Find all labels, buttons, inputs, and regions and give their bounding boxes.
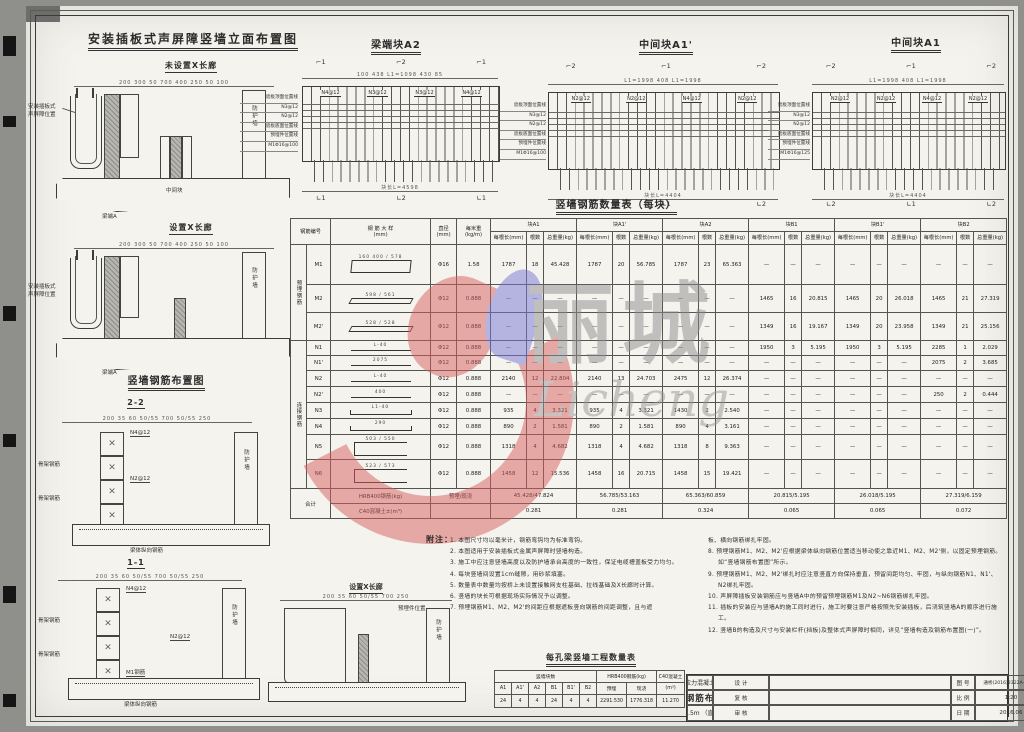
table-cell: 1776.318 — [627, 695, 657, 708]
table-cell: (m³) — [657, 683, 685, 695]
wall-block-a — [104, 256, 120, 340]
table-cell: 1950 — [835, 341, 871, 356]
table-cell: 2 — [957, 356, 974, 371]
table-cell: N1 — [307, 341, 331, 356]
deck-slab — [68, 678, 260, 700]
table-cell: 20 — [613, 245, 630, 285]
table-cell: 23.958 — [888, 313, 921, 341]
guard-wall: 防护墙 — [222, 588, 246, 680]
table-cell: — — [544, 341, 577, 356]
list-item: ∟1 — [316, 194, 326, 202]
scan-mark — [3, 434, 16, 447]
list-item: ⌐2 — [826, 62, 836, 70]
table-cell: N2' — [307, 387, 331, 403]
table-cell: 现浇 — [627, 683, 657, 695]
table-cell: 890 — [663, 419, 699, 435]
scan-mark — [3, 36, 16, 56]
n2-tag: N2@12 — [130, 476, 150, 483]
table-cell: — — [699, 341, 716, 356]
table-cell: 1.581 — [544, 419, 577, 435]
table-cell: — — [613, 356, 630, 371]
table-cell: — — [888, 460, 921, 489]
table-cell: 4 — [613, 435, 630, 460]
table-cell: — — [663, 285, 699, 313]
notes-right-column: 板、横向钢筋绑扎牢固。8. 预埋钢筋M1、M2、M2'应根据梁体纵向钢筋位置适当… — [708, 536, 1004, 637]
table-cell: 0.888 — [457, 341, 491, 356]
table-cell: 528 / 528 — [331, 313, 431, 341]
qty-table-title: 每孔梁竖墙工程数量表 — [496, 652, 686, 667]
table-cell: 3.161 — [716, 419, 749, 435]
dimension-line: 200 35 60 50/55 700 50/55 250 — [62, 416, 252, 423]
table-cell: 4 — [563, 695, 580, 708]
bottom-dimension: 块长L=4598 — [302, 184, 498, 192]
table-cell: 890 — [577, 419, 613, 435]
table-cell: — — [888, 387, 921, 403]
embed-position-label: 预埋件位置 — [398, 604, 426, 612]
table-cell: 1349 — [749, 313, 785, 341]
list-item: N4@12 — [320, 90, 340, 97]
anchor-bolt — [92, 88, 94, 98]
section-label: 2-2 — [127, 398, 144, 409]
table-cell: 预埋 — [597, 683, 627, 695]
table-cell: 5.195 — [888, 341, 921, 356]
guard-wall-label: 防护墙 — [434, 619, 442, 642]
table-cell: 290 — [331, 419, 431, 435]
deck-rebar-label: 梁体纵向钢筋 — [130, 546, 163, 554]
table-cell: — — [785, 371, 802, 387]
table-cell: HRB400钢筋(kg) — [331, 489, 431, 504]
table-cell: — — [888, 245, 921, 285]
table-cell: 20 — [871, 285, 888, 313]
beam-end-label: 梁端A — [102, 212, 117, 220]
table-cell: 3 — [785, 341, 802, 356]
table-cell: 1318 — [491, 435, 527, 460]
subtitle-text: 设置X长廊 — [169, 222, 212, 235]
table-cell: 钢 筋 大 样 (mm) — [331, 219, 431, 245]
table-cell: 0.281 — [491, 504, 577, 519]
table-cell: Φ12 — [431, 371, 457, 387]
table-cell: 2 — [699, 403, 716, 419]
rebar-tails — [306, 160, 494, 182]
table-cell: — — [835, 245, 871, 285]
table-cell: — — [527, 285, 544, 313]
checker-value — [769, 690, 951, 705]
table-cell — [431, 504, 491, 519]
table-cell: — — [716, 341, 749, 356]
table-cell: — — [974, 245, 1007, 285]
designer-label: 设 计 — [713, 675, 769, 690]
table-cell: 26.018/5.195 — [835, 489, 921, 504]
list-item: N2@12 — [830, 96, 850, 103]
list-item: ∟2 — [756, 200, 766, 208]
table-cell: Φ12 — [431, 435, 457, 460]
subtitle-text: 未设置X长廊 — [165, 60, 217, 73]
table-cell: — — [802, 403, 835, 419]
table-cell: 26.018 — [888, 285, 921, 313]
per-span-qty-table: 竖墙块数HRB400钢筋(kg)C40混凝土A1A1'A2B1B1'B2预埋现浇… — [494, 670, 685, 708]
table-cell: 每根长(mm) — [835, 232, 871, 245]
mid-hatch-block — [358, 634, 369, 684]
list-item: N3@12 — [414, 90, 434, 97]
table-cell: 22.804 — [544, 371, 577, 387]
table-cell: Φ12 — [431, 341, 457, 356]
table-cell: 4 — [527, 435, 544, 460]
rebar-grid-a1p: N2@12N2@12N4@12N2@12 — [548, 92, 780, 170]
table-cell: — — [957, 245, 974, 285]
table-cell: L-40 — [331, 341, 431, 356]
list-item: ⌐2 — [566, 62, 576, 70]
block-a1p-title: 中间块A1' — [586, 36, 746, 55]
table-cell: 15 — [699, 460, 716, 489]
list-item: N3@12 — [768, 112, 810, 122]
table-cell: 根数 — [527, 232, 544, 245]
table-cell: C40混凝土 — [657, 671, 685, 683]
table-cell: — — [613, 313, 630, 341]
table-cell: — — [835, 419, 871, 435]
table-cell: — — [785, 435, 802, 460]
table-cell: N5 — [307, 435, 331, 460]
table-cell: N6 — [307, 460, 331, 489]
table-cell: 0.444 — [974, 387, 1007, 403]
deck-slab — [268, 682, 466, 702]
table-cell: — — [527, 387, 544, 403]
project-line1: 无砟轨道后张法预应力混凝土简支箱梁（双线） — [687, 675, 713, 690]
table-cell: 5.195 — [802, 341, 835, 356]
table-cell: — — [716, 356, 749, 371]
dimension-line: 100 438 L1=1098 430 85 — [302, 72, 498, 79]
n4-tag: N4@12 — [130, 430, 150, 437]
list-item: N2@12 — [626, 96, 646, 103]
list-item: ∟2 — [396, 194, 406, 202]
table-cell: — — [613, 285, 630, 313]
section-marks: ∟2∟1∟2 — [826, 200, 996, 208]
scale-label: 比 例 — [951, 690, 975, 705]
mid-block-label: 中间块 — [166, 186, 183, 194]
table-cell: N4 — [307, 419, 331, 435]
table-cell: — — [974, 371, 1007, 387]
block-title-text: 中间块A1' — [639, 36, 693, 55]
anchor-u-post — [70, 258, 102, 329]
table-cell: — — [957, 419, 974, 435]
table-cell: 1349 — [921, 313, 957, 341]
table-cell: 9.363 — [716, 435, 749, 460]
subtitle-with-corridor: 设置X长廊 — [106, 222, 276, 235]
table-cell: 合计 — [291, 489, 331, 519]
dimension-line: L1=1998 408 L1=1998 — [812, 78, 1004, 85]
table-cell: 连接钢筋 — [291, 341, 307, 489]
table-cell: — — [802, 245, 835, 285]
wall-block-a — [104, 94, 120, 180]
table-cell: L1-40 — [331, 403, 431, 419]
table-cell: — — [749, 387, 785, 403]
table-cell: — — [577, 313, 613, 341]
list-item: 遮板顶面位置线 — [240, 94, 298, 104]
table-cell: 1950 — [749, 341, 785, 356]
list-item: ⌐2 — [396, 58, 406, 66]
table-cell: 0.888 — [457, 460, 491, 489]
table-cell: — — [802, 435, 835, 460]
table-cell: — — [527, 341, 544, 356]
table-cell: — — [871, 435, 888, 460]
table-cell: 总重量(kg) — [630, 232, 663, 245]
list-item: 7. 预埋钢筋M1、M2、M2'的间距应根据遮板竖向钢筋的间距调整，且与遮 — [450, 603, 702, 614]
table-cell: 25.156 — [974, 313, 1007, 341]
table-cell: 根数 — [613, 232, 630, 245]
table-cell: M2' — [307, 313, 331, 341]
table-cell: — — [630, 341, 663, 356]
table-cell: 2075 — [331, 356, 431, 371]
table-cell: 根数 — [871, 232, 888, 245]
table-cell: 4 — [699, 419, 716, 435]
list-item: N3@12 — [500, 112, 546, 122]
table-cell: C40混凝土±(m³) — [331, 504, 431, 519]
table-cell: — — [630, 387, 663, 403]
sheet-title: 竖墙构造及钢筋布置图（二） — [687, 690, 713, 705]
table-cell: — — [785, 460, 802, 489]
m1-rebar-label: M1钢筋 — [126, 668, 145, 677]
list-item: ∟1 — [906, 200, 916, 208]
table-cell: 1465 — [921, 285, 957, 313]
guard-wall-label: 防护墙 — [250, 267, 258, 290]
list-item: ⌐2 — [986, 62, 996, 70]
table-cell: Φ12 — [431, 313, 457, 341]
table-cell: 2 — [613, 419, 630, 435]
deck-slab — [56, 178, 290, 212]
table-cell: 20.715 — [630, 460, 663, 489]
table-cell: 根数 — [957, 232, 974, 245]
table-cell: Φ12 — [431, 460, 457, 489]
date-label: 日 期 — [951, 705, 975, 720]
list-item: ∟2 — [986, 200, 996, 208]
table-cell: M2 — [307, 285, 331, 313]
table-cell: 总重量(kg) — [544, 232, 577, 245]
table-cell: 65.363 — [716, 245, 749, 285]
callout-line2: 声屏障位置 — [28, 290, 56, 298]
list-item: ⌐1 — [316, 58, 326, 66]
table-cell: 400 — [331, 387, 431, 403]
mid-hatch-block — [170, 136, 182, 180]
table-cell: 1465 — [835, 285, 871, 313]
table-cell: 935 — [577, 403, 613, 419]
table-cell: 12 — [699, 371, 716, 387]
table-cell: 块A1' — [577, 219, 663, 232]
table-cell: 27.319 — [974, 285, 1007, 313]
table-cell: 4.682 — [630, 435, 663, 460]
stirrup-column: ✕✕ ✕✕ — [100, 432, 124, 524]
table-cell: — — [871, 371, 888, 387]
table-cell: — — [871, 387, 888, 403]
table-cell: — — [835, 403, 871, 419]
table-cell: — — [835, 356, 871, 371]
rebar-grid-a2: N4@12N3@12N3@12N4@12 — [302, 86, 500, 162]
list-item: N4@12 — [922, 96, 942, 103]
table-cell: — — [491, 313, 527, 341]
deck-slab — [56, 338, 290, 370]
corridor-section-diagram: 200 35 60 50/55 700 250 预埋件位置 防护墙 — [266, 594, 466, 708]
section-2-2-title: 2-2 — [96, 398, 176, 409]
corridor-wall — [284, 608, 346, 684]
table-cell: — — [699, 356, 716, 371]
stirrup-column: ✕✕ ✕✕ — [96, 588, 120, 678]
table-cell: 4 — [512, 695, 529, 708]
table-cell: — — [957, 371, 974, 387]
table-cell: — — [957, 435, 974, 460]
table-cell: — — [491, 341, 527, 356]
list-item: ∟2 — [826, 200, 836, 208]
table-cell: 24 — [546, 695, 563, 708]
paper: 安装插板式声屏障竖墙立面布置图 未设置X长廊 200 300 50 700 40… — [26, 6, 1018, 726]
table-cell: 总重量(kg) — [888, 232, 921, 245]
list-item: N2@12 — [500, 121, 546, 131]
deck-slab — [72, 524, 270, 546]
list-item: 8. 预埋钢筋M1、M2、M2'应根据梁体纵向钢筋位置适当移动使之靠近M1、M2… — [708, 547, 1004, 569]
designer-value — [769, 675, 951, 690]
table-cell: — — [663, 387, 699, 403]
table-cell: 4 — [527, 403, 544, 419]
table-cell: 8 — [699, 435, 716, 460]
table-cell: 0.888 — [457, 313, 491, 341]
date-value: 2016.06 — [975, 705, 1024, 720]
table-cell: 直径 (mm) — [431, 219, 457, 245]
table-cell: 每根长(mm) — [491, 232, 527, 245]
table-cell: 1465 — [749, 285, 785, 313]
table-cell: — — [716, 387, 749, 403]
table-cell: — — [544, 356, 577, 371]
table-cell: 0.888 — [457, 285, 491, 313]
table-cell: 根数 — [699, 232, 716, 245]
table-cell: — — [577, 341, 613, 356]
dimension-line: 200 300 50 700 400 250 50 100 — [74, 80, 274, 87]
table-cell: 根数 — [785, 232, 802, 245]
table-cell: — — [716, 313, 749, 341]
dimension-line: 200 300 50 700 400 250 50 100 — [74, 242, 274, 249]
table-cell: — — [491, 285, 527, 313]
table-cell: — — [749, 419, 785, 435]
main-title-text: 安装插板式声屏障竖墙立面布置图 — [88, 30, 298, 51]
callout-line1: 安装插板式 — [28, 102, 56, 110]
table-cell: 0.888 — [457, 403, 491, 419]
section-marks: ∟1∟2∟1 — [316, 194, 486, 202]
subtitle-no-corridor: 未设置X长廊 — [106, 60, 276, 73]
reviewer-value — [769, 705, 951, 720]
section-1-1-diagram: 200 35 60 50/55 700 50/55 250 骨架钢筋 骨架钢筋 … — [38, 572, 258, 708]
list-item: N4@12 — [461, 90, 481, 97]
list-item: 遮板底面位置线 — [500, 131, 546, 141]
list-item: ⌐1 — [476, 58, 486, 66]
block-title-text: 中间块A1 — [891, 34, 941, 53]
table-cell: — — [802, 419, 835, 435]
table-cell: 2140 — [577, 371, 613, 387]
section-label: 设置X长廊 — [349, 582, 382, 594]
table-cell: — — [577, 356, 613, 371]
table-cell: 2075 — [921, 356, 957, 371]
table-cell: 0.888 — [457, 387, 491, 403]
table-cell: 890 — [491, 419, 527, 435]
table-cell: 250 — [921, 387, 957, 403]
table-cell: 2 — [957, 387, 974, 403]
list-item: M1Φ16@100 — [240, 142, 298, 152]
table-cell: — — [921, 419, 957, 435]
mid-post — [182, 136, 192, 180]
list-item: 6. 竖墙的块长可根据现场实际情况予以调整。 — [450, 592, 702, 603]
table-cell: Φ12 — [431, 419, 457, 435]
callout-line2: 声屏障位置 — [28, 110, 56, 118]
skeleton-rebar-label: 骨架钢筋 — [38, 616, 60, 624]
section-marks: ⌐2⌐1⌐2 — [566, 62, 766, 70]
table-cell: 15.536 — [544, 460, 577, 489]
scan-mark — [3, 694, 16, 707]
table-cell: 2.029 — [974, 341, 1007, 356]
list-item: N3@12 — [367, 90, 387, 97]
table-cell: 26.374 — [716, 371, 749, 387]
table-cell: — — [527, 356, 544, 371]
drawing-sheet: 安装插板式声屏障竖墙立面布置图 未设置X长廊 200 300 50 700 40… — [0, 0, 1024, 732]
table-cell: — — [699, 285, 716, 313]
qty-table-title-text: 每孔梁竖墙工程数量表 — [546, 652, 636, 667]
table-cell: — — [974, 435, 1007, 460]
guard-wall: 防护墙 — [242, 252, 266, 340]
rebar-band-labels: N4@12N3@12N3@12N4@12 — [307, 90, 495, 97]
table-cell: A1' — [512, 683, 529, 695]
table-cell: — — [699, 387, 716, 403]
table-cell: 20.815/5.195 — [749, 489, 835, 504]
table-cell: 65.363/60.859 — [663, 489, 749, 504]
rebar-layout-title: 竖墙钢筋布置图 — [76, 372, 256, 391]
section-1-1-title: 1-1 — [96, 558, 176, 569]
table-cell: — — [871, 419, 888, 435]
table-cell: 56.785 — [630, 245, 663, 285]
rebar-band-labels: N2@12N2@12N4@12N2@12 — [553, 96, 775, 103]
table-cell: B1' — [563, 683, 580, 695]
table-cell: — — [921, 435, 957, 460]
table-cell: — — [871, 460, 888, 489]
table-cell: 19.167 — [802, 313, 835, 341]
table-cell: 2.540 — [716, 403, 749, 419]
table-cell: — — [630, 285, 663, 313]
list-item: 9. 预埋钢筋M1、M2、M2'绑扎时应注意竖直方向保持垂直，预留间距均匀、牢固… — [708, 570, 1004, 592]
table-cell: 4 — [613, 403, 630, 419]
table-cell: 24 — [495, 695, 512, 708]
table-cell: 每根长(mm) — [921, 232, 957, 245]
table-cell: 16 — [785, 285, 802, 313]
table-cell: 1318 — [663, 435, 699, 460]
scan-mark — [3, 116, 16, 127]
table-cell: — — [544, 313, 577, 341]
table-cell: — — [785, 356, 802, 371]
annotation-stack: 遮板顶面位置线N3@12N2@12遮板底面位置线预埋件位置线M1Φ16@125 — [768, 102, 810, 160]
table-cell: — — [630, 356, 663, 371]
list-item: N2@12 — [737, 96, 757, 103]
table-cell: — — [835, 435, 871, 460]
table-cell: B1 — [546, 683, 563, 695]
table-cell: 每根长(mm) — [663, 232, 699, 245]
table-cell: — — [921, 245, 957, 285]
drawing-no-value: 通桥(2016)2322A-Ⅱ-1-22 — [975, 675, 1024, 690]
table-cell: — — [921, 371, 957, 387]
n2-tag: N2@12 — [170, 634, 190, 641]
table-cell: — — [613, 387, 630, 403]
table-cell: 钢筋编号 — [291, 219, 331, 245]
table-cell: — — [974, 403, 1007, 419]
table-cell: 每根长(mm) — [577, 232, 613, 245]
table-cell: Φ12 — [431, 403, 457, 419]
guard-wall-label: 防护墙 — [242, 449, 250, 472]
guard-wall: 防护墙 — [426, 608, 450, 684]
table-cell: 2140 — [491, 371, 527, 387]
list-item: ⌐1 — [906, 62, 916, 70]
table-cell: — — [888, 371, 921, 387]
table-cell: 总重量(kg) — [716, 232, 749, 245]
